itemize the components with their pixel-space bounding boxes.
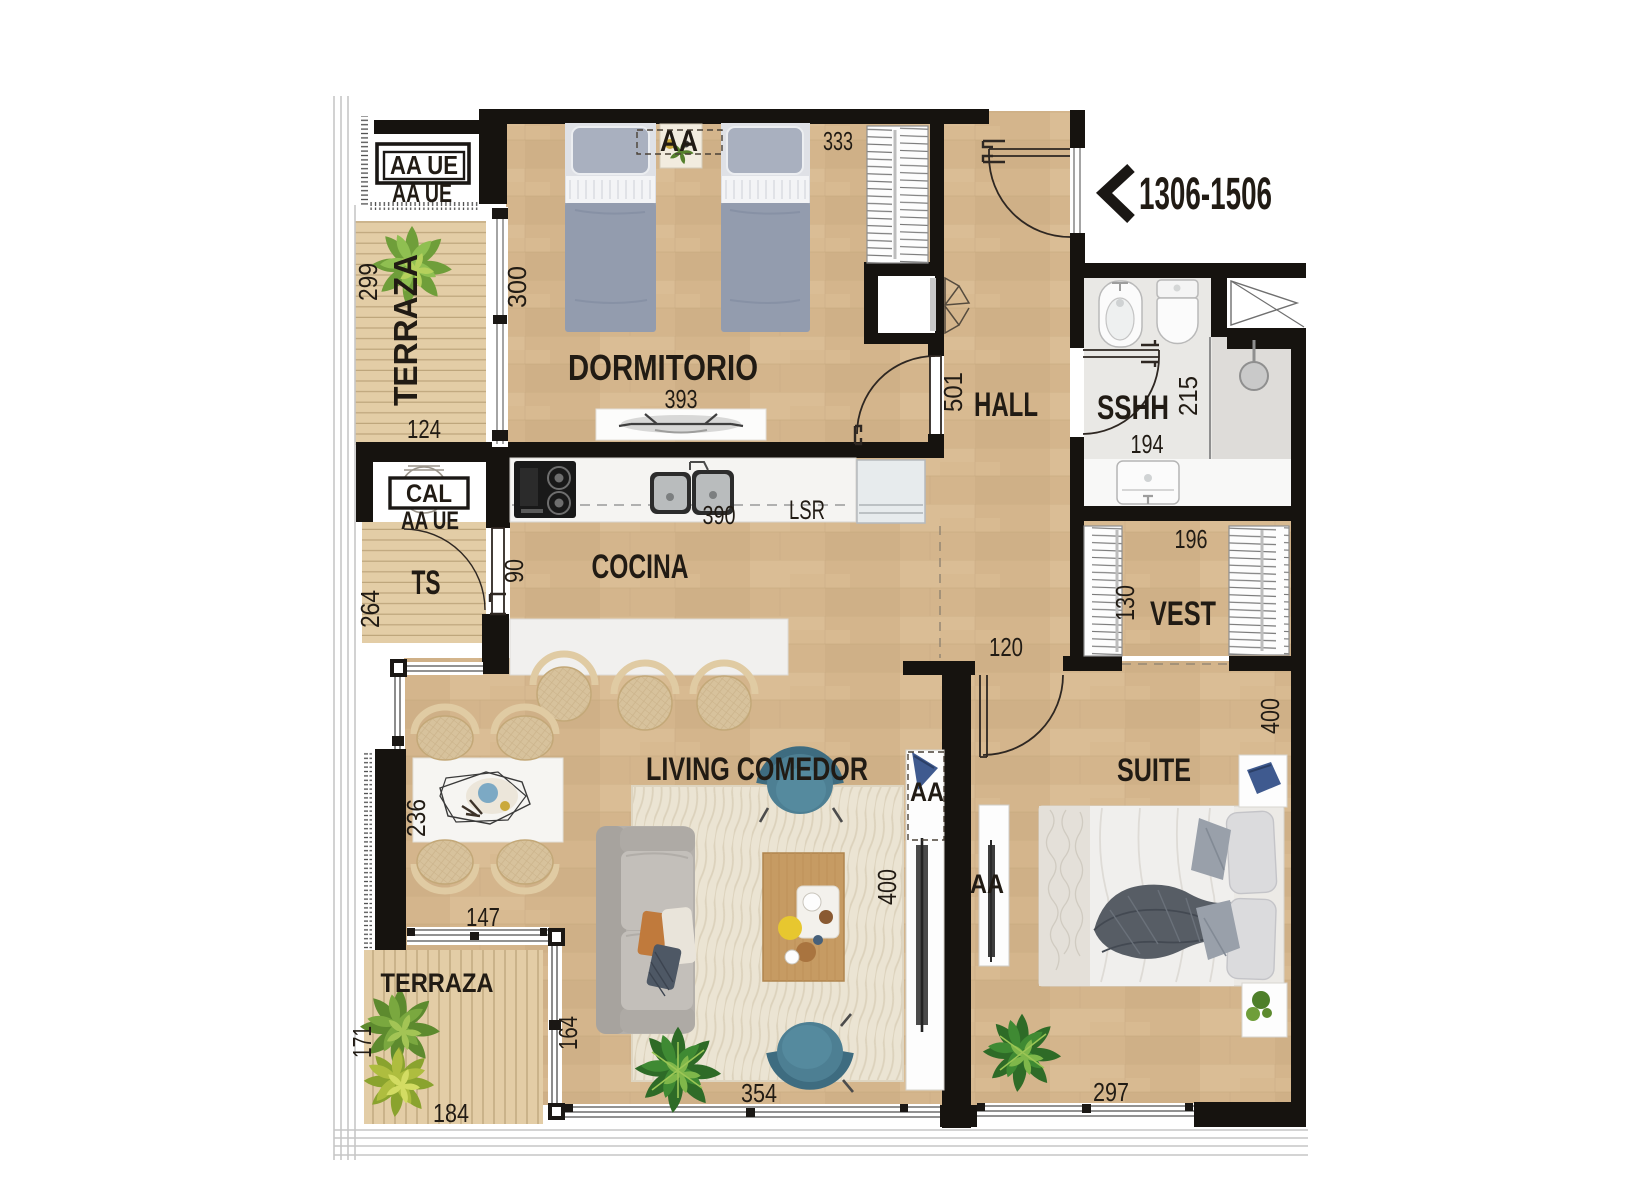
svg-text:264: 264 — [355, 590, 385, 628]
svg-text:SUITE: SUITE — [1117, 752, 1191, 788]
svg-text:TERRAZA: TERRAZA — [381, 968, 494, 998]
svg-text:299: 299 — [353, 263, 383, 301]
svg-text:501: 501 — [938, 372, 968, 412]
svg-text:TERRAZA: TERRAZA — [387, 254, 424, 406]
svg-text:TS: TS — [412, 564, 441, 602]
svg-text:171: 171 — [347, 1026, 377, 1058]
svg-text:400: 400 — [872, 869, 902, 905]
svg-text:AA UE: AA UE — [390, 150, 458, 180]
svg-text:LIVING COMEDOR: LIVING COMEDOR — [646, 751, 868, 787]
svg-text:390: 390 — [703, 500, 736, 530]
svg-text:194: 194 — [1131, 429, 1164, 459]
svg-text:164: 164 — [553, 1016, 583, 1050]
svg-text:AA UE: AA UE — [392, 178, 452, 208]
svg-text:AA: AA — [910, 777, 944, 807]
svg-text:400: 400 — [1255, 698, 1285, 734]
svg-text:LSR: LSR — [789, 495, 825, 525]
svg-text:215: 215 — [1173, 376, 1203, 416]
svg-text:HALL: HALL — [974, 386, 1038, 424]
svg-text:DORMITORIO: DORMITORIO — [568, 347, 758, 388]
svg-text:90: 90 — [499, 559, 529, 583]
svg-text:236: 236 — [401, 799, 431, 837]
svg-text:196: 196 — [1175, 524, 1208, 554]
svg-text:1306-1506: 1306-1506 — [1139, 168, 1272, 219]
svg-text:393: 393 — [665, 384, 698, 414]
svg-text:300: 300 — [502, 266, 532, 308]
svg-text:124: 124 — [407, 414, 441, 444]
svg-text:AA: AA — [660, 125, 698, 158]
svg-text:CAL: CAL — [406, 480, 452, 508]
svg-text:COCINA: COCINA — [592, 548, 689, 586]
svg-text:147: 147 — [466, 902, 500, 932]
svg-text:VEST: VEST — [1150, 595, 1216, 633]
svg-text:354: 354 — [741, 1078, 777, 1108]
svg-text:130: 130 — [1110, 585, 1140, 621]
svg-text:SSHH: SSHH — [1097, 389, 1169, 427]
svg-text:AA: AA — [970, 869, 1004, 899]
svg-text:AA UE: AA UE — [401, 507, 459, 535]
svg-text:297: 297 — [1093, 1077, 1129, 1107]
svg-text:184: 184 — [433, 1098, 469, 1128]
svg-text:333: 333 — [823, 126, 853, 156]
svg-text:120: 120 — [989, 632, 1023, 662]
